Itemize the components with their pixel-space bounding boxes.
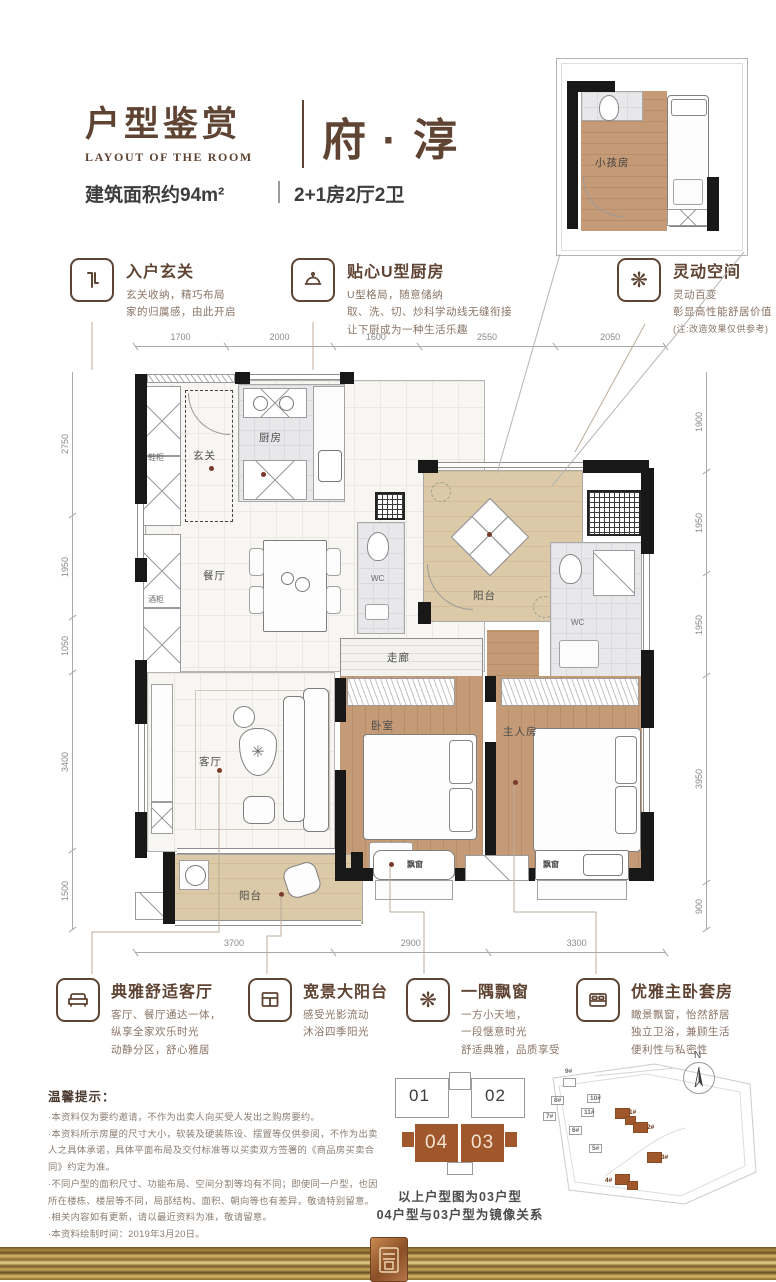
room-label-dining: 餐厅 <box>203 568 226 583</box>
tv-cabinet <box>151 684 173 802</box>
dim-value: 2550 <box>477 332 497 342</box>
building-label: 8# <box>554 1097 561 1104</box>
window-icon <box>248 978 292 1022</box>
callout-dot <box>389 862 394 867</box>
wall-segment <box>135 558 147 582</box>
building-label: 3# <box>661 1154 668 1161</box>
dimension-bottom: 3700 2900 3300 <box>135 938 665 953</box>
chair <box>249 548 264 576</box>
shaft <box>587 490 641 536</box>
chair <box>326 548 341 576</box>
flower-icon: ❋ <box>617 258 661 302</box>
building-label: 2# <box>647 1124 654 1131</box>
feature-master-suite: 优雅主卧套房 瞰景飘窗，怡然舒居 独立卫浴，兼顾生活 便利性与私密性 <box>576 978 756 1059</box>
plant <box>431 482 451 502</box>
tableware <box>295 577 310 592</box>
notice-block: 温馨提示： ·本资料仅为要约邀请，不作为出卖人向买受人发出之购房要约。 ·本资料… <box>48 1086 380 1243</box>
wall-segment <box>567 81 578 229</box>
building-marker-highlight <box>627 1181 638 1190</box>
feature-line: 感受光影流动 <box>303 1007 388 1024</box>
dim-value: 900 <box>694 899 704 914</box>
core-shaft <box>449 1072 471 1090</box>
title-chinese: 户型鉴赏 <box>85 96 253 147</box>
dimension-left: 2750 1950 1050 3400 1500 <box>58 372 73 930</box>
pillow <box>671 99 707 116</box>
building-marker-highlight <box>647 1152 662 1163</box>
notice-item: ·本资料所示房屋的尺寸大小，软装及硬装陈设、摆置等仅供参阅，不作为出卖人之具体承… <box>48 1126 380 1176</box>
feature-baywindow: ❋ 一隅飘窗 一方小天地， 一段惬意时光 舒适典雅，品质享受 <box>406 978 566 1059</box>
hob-burner <box>279 396 294 411</box>
pillow <box>449 740 473 784</box>
feature-line: 一方小天地， <box>461 1007 560 1024</box>
feature-title: 宽景大阳台 <box>303 978 388 1002</box>
shower <box>593 550 635 596</box>
feature-title: 灵动空间 <box>673 258 772 282</box>
feature-line: 家的归属感，由此开启 <box>126 304 236 321</box>
dim-value: 3950 <box>694 769 704 789</box>
shoe-cabinet <box>143 386 181 456</box>
wall-segment <box>235 372 250 384</box>
feature-line: 玄关收纳，精巧布局 <box>126 287 236 304</box>
unit-diagram: 01 02 04 03 <box>385 1072 535 1180</box>
wall-segment <box>335 770 346 872</box>
kitchen-counter <box>243 460 307 500</box>
building-label: 6# <box>572 1127 579 1134</box>
building-label: 4# <box>605 1177 612 1184</box>
bay-window-seat <box>583 854 623 876</box>
foyer-icon <box>70 258 114 302</box>
feature-note: (注:改造效果仅供参考) <box>673 322 772 337</box>
building-marker-highlight <box>633 1122 648 1133</box>
corridor-floor <box>340 638 483 678</box>
unit-number: 02 <box>485 1086 506 1106</box>
dim-value: 1950 <box>694 513 704 533</box>
dim-value: 3700 <box>224 938 244 948</box>
wall-segment <box>641 468 654 554</box>
feature-line: 彰显高性能舒居价值 <box>673 304 772 321</box>
basin <box>365 604 389 620</box>
dim-value: 1050 <box>60 636 70 656</box>
feature-line: 一段惬意时光 <box>461 1024 560 1041</box>
pillow <box>449 788 473 832</box>
sofa <box>283 696 305 822</box>
tableware <box>281 572 294 585</box>
dim-value: 1950 <box>694 615 704 635</box>
flower-icon: ❋ <box>406 978 450 1022</box>
balcony-rail <box>175 920 361 926</box>
notice-title: 温馨提示： <box>48 1086 380 1105</box>
toilet <box>367 532 389 561</box>
dim-value: 1950 <box>60 557 70 577</box>
notice-item: ·不同户型的面积尺寸、功能布局、空间分割等均有不同；即使同一户型，也因所在楼栋、… <box>48 1176 380 1209</box>
room-label-wine-cabinet: 酒柜 <box>148 594 164 605</box>
title-divider <box>302 100 304 168</box>
room-label-master: 主人房 <box>503 724 538 739</box>
feature-title: 贴心U型厨房 <box>347 258 512 282</box>
building-label: 1# <box>629 1109 636 1116</box>
room-label-corridor: 走廊 <box>387 650 410 665</box>
room-label-living: 客厅 <box>199 754 222 769</box>
room-label-wc1: WC <box>371 574 384 583</box>
site-map: 9# 10# 8# 11# 7# 6# 5# 1# 2# 3# 4# <box>535 1056 763 1216</box>
feature-title: 入户玄关 <box>126 258 236 282</box>
dim-value: 1900 <box>694 412 704 432</box>
wardrobe <box>501 678 639 706</box>
pillow <box>615 786 637 834</box>
poster-page: { "colors": { "accent": "#5f4433", "unit… <box>0 0 776 1280</box>
feature-line: 客厅、餐厅通达一体， <box>111 1007 221 1024</box>
sofa <box>303 688 329 832</box>
floor-plan: 鞋柜 酒柜 玄关 厨房 餐厅 WC 阳台 WC 走廊 <box>135 372 665 930</box>
wall-segment <box>418 460 438 473</box>
ac-ledge <box>465 855 529 881</box>
dimension-top: 1700 2000 1600 2550 2050 <box>135 332 665 347</box>
wall-segment <box>135 812 147 858</box>
room-label-shoe-cabinet: 鞋柜 <box>148 452 164 463</box>
feature-line: 取、洗、切、炒科学动线无缝衔接 <box>347 304 512 321</box>
window <box>643 728 650 812</box>
callout-dot <box>513 780 518 785</box>
callout-dot <box>261 472 266 477</box>
tv-cabinet <box>151 802 173 834</box>
feature-line: 独立卫浴，兼顾生活 <box>631 1024 733 1041</box>
building-label: 5# <box>592 1145 599 1152</box>
feature-line: 便利性与私密性 <box>631 1042 733 1059</box>
dim-value: 1700 <box>170 332 190 342</box>
side-table <box>233 706 255 728</box>
wardrobe <box>347 678 455 706</box>
area-text: 建筑面积约94m² <box>85 180 224 207</box>
room-label-baywindow-right: 飘窗 <box>543 859 559 870</box>
cabinet <box>667 209 709 226</box>
feature-line: 瞰景飘窗，怡然舒居 <box>631 1007 733 1024</box>
building-label: 10# <box>590 1095 601 1102</box>
kitchen-counter <box>313 386 345 500</box>
bed-icon <box>576 978 620 1022</box>
entry-tab <box>447 1162 473 1175</box>
feature-line: U型格局，随意储纳 <box>347 287 512 304</box>
wall-segment <box>335 678 346 722</box>
dim-value: 1600 <box>366 332 386 342</box>
feature-flex-space: ❋ 灵动空间 灵动百变 彰显高性能舒居价值 (注:改造效果仅供参考) <box>617 258 776 336</box>
unit-number: 01 <box>409 1086 430 1106</box>
unit-wing <box>402 1132 414 1147</box>
room-label-bedroom: 卧室 <box>371 718 394 733</box>
building-label: 9# <box>565 1068 572 1075</box>
wall-segment <box>641 672 654 728</box>
room-label-kitchen: 厨房 <box>259 430 282 445</box>
unit-wing <box>505 1132 517 1147</box>
wall-segment <box>641 812 654 874</box>
callout-dot <box>279 892 284 897</box>
window <box>147 374 235 383</box>
unit-number-highlight: 03 <box>471 1132 494 1154</box>
room-label-foyer: 玄关 <box>193 448 216 463</box>
dim-value: 3400 <box>60 752 70 772</box>
feature-living: 典雅舒适客厅 客厅、餐厅通达一体， 纵享全家欢乐时光 动静分区，舒心雅居 <box>56 978 241 1059</box>
dim-value: 1500 <box>60 881 70 901</box>
building-marker <box>563 1078 576 1087</box>
feature-title: 优雅主卧套房 <box>631 978 733 1002</box>
cloche-icon <box>291 258 335 302</box>
wall-segment <box>418 602 431 624</box>
basin <box>559 640 599 668</box>
washing-machine-door <box>185 865 206 886</box>
sofa-icon <box>56 978 100 1022</box>
callout-dot <box>217 768 222 773</box>
title-english: LAYOUT OF THE ROOM <box>85 150 253 165</box>
dim-value: 2900 <box>401 938 421 948</box>
feature-line: 动静分区，舒心雅居 <box>111 1042 221 1059</box>
unit-number-highlight: 04 <box>425 1132 448 1154</box>
hob-burner <box>253 396 268 411</box>
notice-item: ·相关内容如有更新，请以最近资料为准，敬请留意。 <box>48 1209 380 1226</box>
feature-title: 典雅舒适客厅 <box>111 978 221 1002</box>
wall-segment <box>583 460 649 473</box>
feature-foyer: 入户玄关 玄关收纳，精巧布局 家的归属感，由此开启 <box>70 258 300 322</box>
feature-kitchen: 贴心U型厨房 U型格局，随意储纳 取、洗、切、炒科学动线无缝衔接 让下厨成为一种… <box>291 258 541 339</box>
page-title: 户型鉴赏 LAYOUT OF THE ROOM <box>85 96 253 165</box>
ledge <box>537 880 627 900</box>
notice-item: ·本资料绘制时间：2019年3月20日。 <box>48 1226 380 1243</box>
feature-line: 灵动百变 <box>673 287 772 304</box>
window <box>438 462 583 468</box>
brand-seal <box>370 1237 408 1282</box>
wall-segment <box>163 852 175 924</box>
dim-value: 2750 <box>60 434 70 454</box>
shoe-cabinet <box>143 456 181 526</box>
dim-value: 2000 <box>270 332 290 342</box>
wall-segment <box>135 660 147 724</box>
sliding-door <box>177 848 337 854</box>
product-name: 府 · 淳 <box>322 104 459 168</box>
room-label-baywindow-left: 飘窗 <box>407 859 423 870</box>
feature-line: 纵享全家欢乐时光 <box>111 1024 221 1041</box>
wine-cabinet <box>143 608 181 682</box>
room-label-child: 小孩房 <box>595 155 630 170</box>
chair <box>326 586 341 614</box>
building-label: 11# <box>584 1109 595 1116</box>
room-label-balcony-bottom: 阳台 <box>239 888 262 903</box>
toilet <box>599 95 619 121</box>
ledge <box>375 880 453 900</box>
layout-text: 2+1房2厅2卫 <box>294 180 404 207</box>
window <box>250 374 340 380</box>
room-label-balcony-top: 阳台 <box>473 588 496 603</box>
feature-line: 舒适典雅，品质享受 <box>461 1042 560 1059</box>
armchair <box>243 796 275 824</box>
toilet <box>559 554 582 584</box>
sink <box>318 450 342 482</box>
chair <box>249 586 264 614</box>
window <box>138 724 145 812</box>
window <box>643 554 650 650</box>
feature-title: 一隅飘窗 <box>461 978 560 1002</box>
wall-segment <box>135 374 147 504</box>
wall-segment <box>485 676 496 702</box>
wall-segment <box>707 177 719 231</box>
shaft <box>375 492 405 520</box>
dimension-right: 1900 1950 1950 3950 900 <box>692 372 707 930</box>
pillow <box>615 736 637 784</box>
feature-line: 沐浴四季阳光 <box>303 1024 388 1041</box>
compass-icon <box>683 1062 715 1094</box>
notice-item: ·本资料仅为要约邀请，不作为出卖人向买受人发出之购房要约。 <box>48 1109 380 1126</box>
inset-plan: 小孩房 <box>556 58 748 256</box>
window <box>137 504 144 558</box>
wall-segment <box>351 852 363 872</box>
wall-segment <box>629 868 654 881</box>
wall-segment <box>340 372 354 384</box>
callout-dot <box>209 466 214 471</box>
chair <box>673 179 703 205</box>
feature-balcony: 宽景大阳台 感受光影流动 沐浴四季阳光 <box>248 978 398 1042</box>
dim-value: 3300 <box>567 938 587 948</box>
room-label-wc2: WC <box>571 618 584 627</box>
callout-dot <box>487 532 492 537</box>
subtitle-divider <box>278 181 280 203</box>
building-label: 7# <box>546 1113 553 1120</box>
dim-value: 2050 <box>600 332 620 342</box>
